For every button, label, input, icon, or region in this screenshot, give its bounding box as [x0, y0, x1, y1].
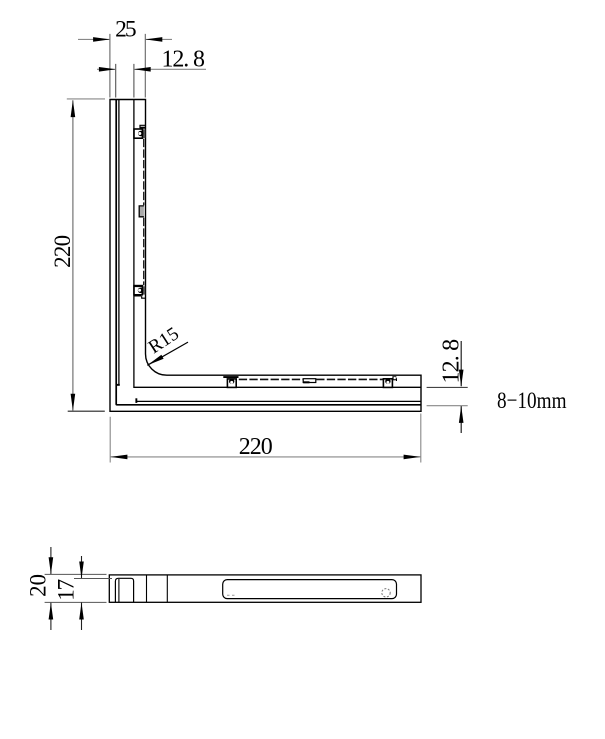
svg-text:220: 220	[50, 235, 75, 268]
svg-text:17: 17	[54, 579, 79, 601]
svg-text:12. 8: 12. 8	[162, 46, 206, 72]
svg-text:12. 8: 12. 8	[439, 339, 465, 384]
svg-text:220: 220	[239, 434, 273, 460]
svg-text:25: 25	[115, 17, 136, 43]
svg-text:20: 20	[25, 574, 50, 597]
svg-text:8−10mm: 8−10mm	[497, 388, 567, 414]
